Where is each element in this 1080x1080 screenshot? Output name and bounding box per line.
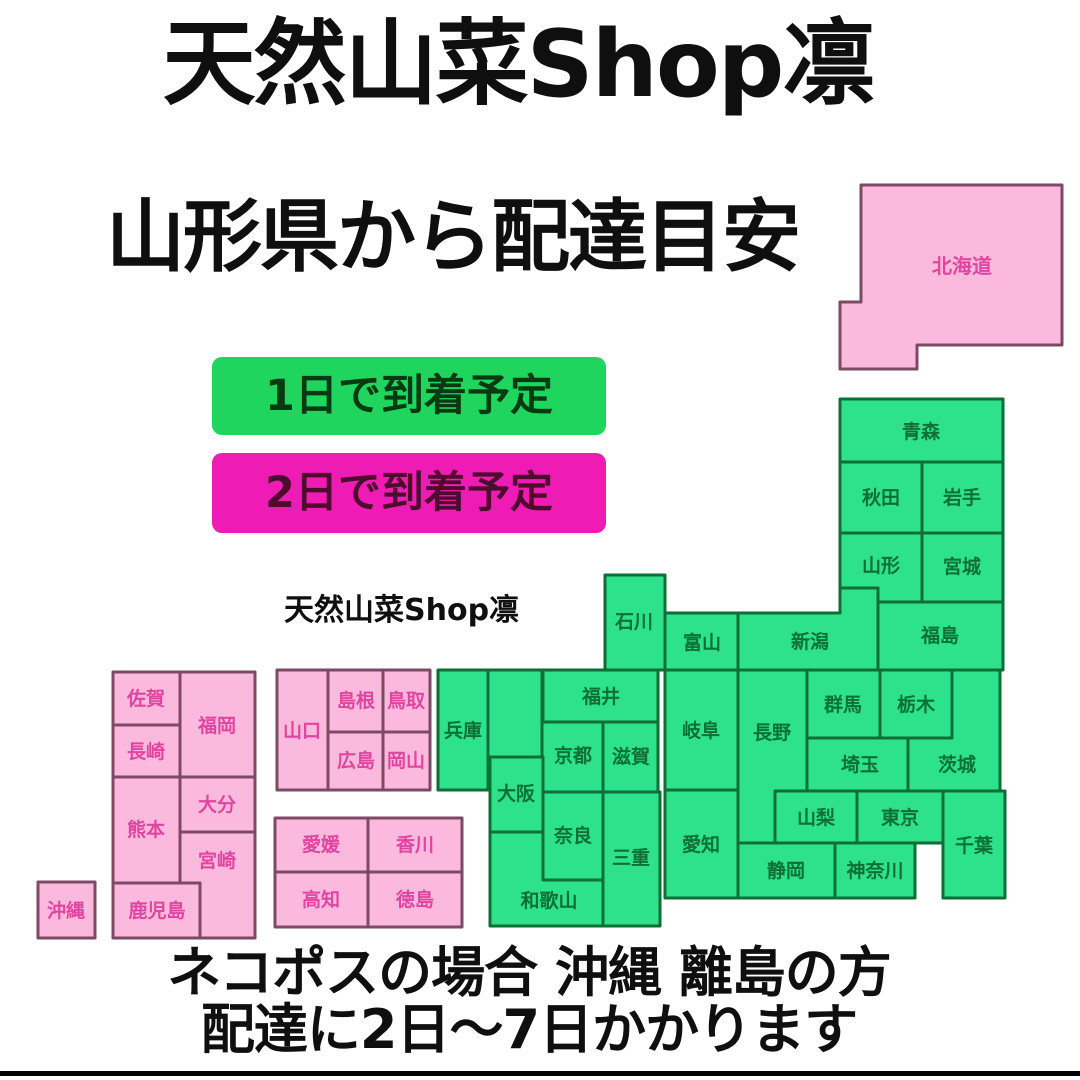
prefecture-aomori: 青森 (840, 399, 1003, 462)
prefecture-label-nara: 奈良 (553, 824, 592, 847)
prefecture-label-ishikawa: 石川 (614, 611, 653, 633)
prefecture-okayama: 岡山 (383, 732, 430, 790)
prefecture-label-kumamoto: 熊本 (127, 818, 165, 841)
prefecture-fukui: 福井 (543, 670, 658, 722)
prefecture-label-kanagawa: 神奈川 (846, 859, 903, 882)
delivery-infographic: 天然山菜Shop凛 山形県から配達目安 1日で到着予定 2日で到着予定 天然山菜… (0, 0, 1080, 1080)
prefecture-label-ibaraki: 茨城 (938, 753, 976, 776)
prefecture-shizuoka: 静岡 (738, 843, 835, 898)
prefecture-iwate: 岩手 (922, 462, 1003, 533)
prefecture-kagoshima: 鹿児島 (113, 883, 200, 938)
footer-line-2: 配達に2日〜7日かかります (0, 1001, 1058, 1058)
prefecture-label-iwate: 岩手 (942, 486, 981, 509)
prefecture-toyama: 富山 (665, 613, 738, 670)
prefecture-tochigi: 栃木 (880, 670, 952, 738)
prefecture-label-nagano: 長野 (753, 722, 791, 744)
prefecture-gunma: 群馬 (807, 670, 880, 738)
prefecture-label-okinawa: 沖縄 (47, 899, 85, 922)
prefecture-label-mie: 三重 (612, 847, 650, 869)
prefecture-label-tokyo: 東京 (881, 806, 919, 829)
prefecture-label-yamaguchi: 山口 (283, 720, 321, 742)
prefecture-nagasaki: 長崎 (113, 725, 180, 777)
prefecture-gifu: 岐阜 (665, 670, 738, 790)
prefecture-label-gifu: 岐阜 (682, 719, 720, 742)
prefecture-tokushima: 徳島 (368, 872, 462, 927)
prefecture-saga: 佐賀 (113, 672, 180, 725)
prefecture-shimane: 島根 (328, 670, 383, 732)
prefecture-label-osaka: 大阪 (497, 782, 536, 805)
prefecture-label-hyogo: 兵庫 (444, 719, 482, 742)
prefecture-label-shimane: 島根 (337, 689, 375, 712)
prefecture-kyoto: 京都 (542, 722, 603, 792)
prefecture-label-hiroshima: 広島 (337, 749, 375, 772)
prefecture-saitama: 埼玉 (807, 738, 908, 791)
prefecture-label-gunma: 群馬 (823, 693, 862, 716)
prefecture-label-saga: 佐賀 (126, 687, 165, 710)
prefecture-yamaguchi: 山口 (277, 670, 328, 790)
prefecture-label-toyama: 富山 (683, 631, 721, 654)
prefecture-label-saitama: 埼玉 (841, 753, 879, 776)
japan-map: 北海道青森秋田岩手山形宮城福島新潟富山石川福井岐阜長野群馬栃木茨城埼玉山梨東京千… (0, 0, 1080, 1080)
prefecture-label-niigata: 新潟 (791, 630, 829, 653)
prefecture-miyagi: 宮城 (922, 533, 1003, 602)
prefecture-label-kagawa: 香川 (395, 834, 434, 856)
prefecture-label-tokushima: 徳島 (395, 888, 434, 911)
prefecture-tottori: 鳥取 (383, 670, 430, 732)
prefecture-tile-kyoto-north (488, 670, 542, 757)
prefecture-ehime: 愛媛 (275, 818, 368, 872)
prefecture-label-fukushima: 福島 (920, 624, 959, 647)
prefecture-niigata: 新潟 (738, 588, 878, 670)
prefecture-label-aomori: 青森 (902, 420, 941, 443)
prefecture-label-okayama: 岡山 (387, 750, 425, 772)
footer-line-1: ネコポスの場合 沖縄 離島の方 (0, 944, 1058, 1001)
prefecture-okinawa: 沖縄 (38, 882, 95, 938)
prefecture-nara: 奈良 (543, 792, 603, 880)
prefecture-label-yamagata: 山形 (862, 555, 900, 577)
prefecture-ishikawa: 石川 (605, 575, 665, 670)
prefecture-tokyo: 東京 (857, 791, 943, 843)
prefecture-label-yamanashi: 山梨 (797, 806, 836, 829)
footer-note: ネコポスの場合 沖縄 離島の方 配達に2日〜7日かかります (0, 944, 1058, 1058)
prefecture-label-miyagi: 宮城 (943, 555, 981, 578)
prefecture-akita: 秋田 (840, 462, 922, 533)
prefecture-kagawa: 香川 (368, 818, 462, 872)
prefecture-label-oita: 大分 (198, 793, 236, 816)
prefecture-osaka: 大阪 (490, 757, 543, 832)
prefecture-label-tottori: 鳥取 (387, 689, 425, 712)
prefecture-label-wakayama: 和歌山 (520, 889, 577, 912)
prefecture-hyogo: 兵庫 (438, 670, 488, 790)
prefecture-yamanashi: 山梨 (775, 791, 857, 843)
prefecture-kanagawa: 神奈川 (835, 843, 915, 898)
prefecture-mie: 三重 (603, 792, 660, 926)
prefecture-label-aichi: 愛知 (682, 833, 720, 856)
prefecture-label-hokkaido: 北海道 (932, 254, 992, 278)
prefecture-hokkaido: 北海道 (840, 185, 1062, 369)
prefecture-label-tochigi: 栃木 (897, 693, 936, 716)
prefecture-label-fukui: 福井 (581, 685, 620, 708)
prefecture-oita: 大分 (180, 777, 255, 832)
prefecture-aichi: 愛知 (665, 790, 738, 898)
prefecture-label-kyoto: 京都 (554, 744, 592, 767)
prefecture-label-shiga: 滋賀 (612, 745, 650, 768)
prefecture-label-ehime: 愛媛 (302, 833, 341, 856)
prefecture-label-akita: 秋田 (862, 486, 900, 509)
prefecture-label-kochi: 高知 (302, 888, 340, 911)
prefecture-label-shizuoka: 静岡 (767, 859, 805, 882)
prefecture-tile-niigata (738, 588, 878, 670)
prefecture-fukuoka: 福岡 (180, 672, 255, 777)
prefecture-kochi: 高知 (275, 872, 368, 927)
prefecture-label-chiba: 千葉 (955, 835, 994, 857)
prefecture-chiba: 千葉 (943, 791, 1005, 898)
prefecture-kumamoto: 熊本 (113, 777, 180, 883)
prefecture-hiroshima: 広島 (328, 732, 383, 790)
prefecture-fukushima: 福島 (878, 602, 1003, 670)
prefecture-label-kagoshima: 鹿児島 (128, 899, 185, 922)
prefecture-shiga: 滋賀 (603, 722, 658, 792)
prefecture-kyoto-north (488, 670, 542, 757)
prefecture-label-miyazaki: 宮崎 (198, 849, 236, 872)
prefecture-label-fukuoka: 福岡 (197, 714, 236, 737)
prefecture-label-nagasaki: 長崎 (127, 740, 165, 763)
bottom-bar (0, 1071, 1080, 1076)
